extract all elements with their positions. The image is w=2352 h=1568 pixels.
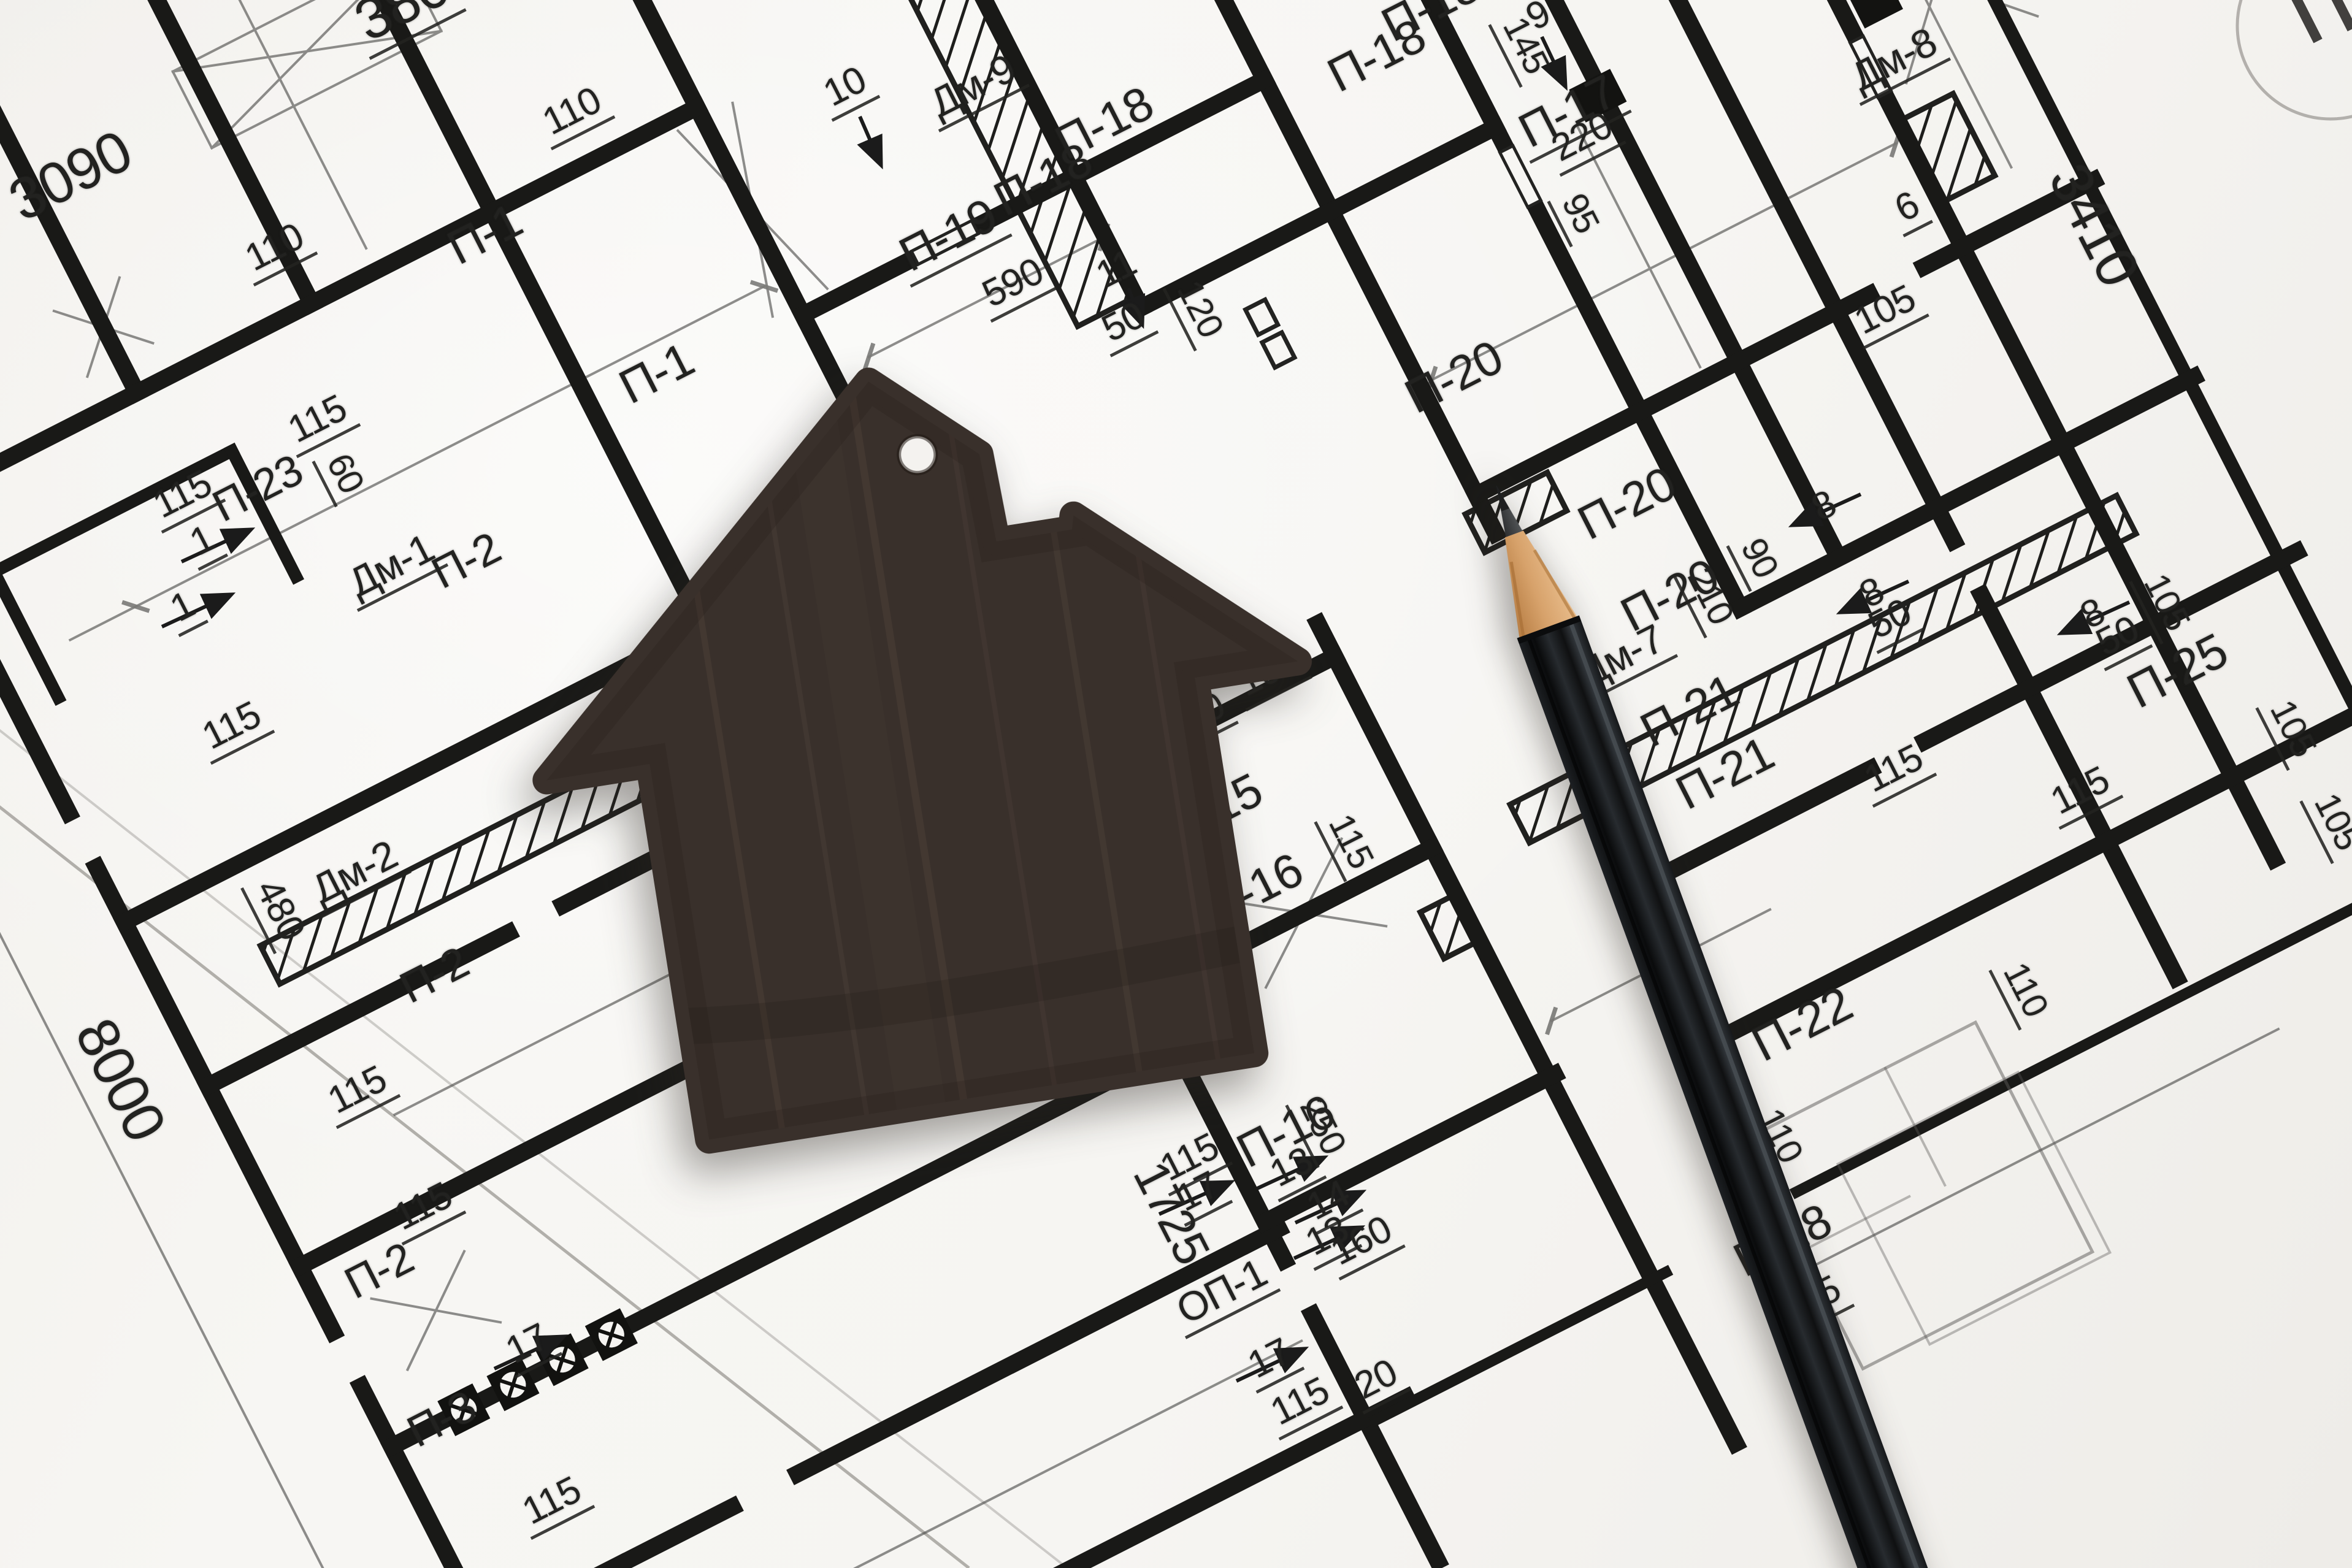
blueprint-photo: 3803090110110П-1П-1115П-23115601Дм-1П-21… [0,0,2352,1568]
photo-objects [0,0,2352,1568]
house-tag [489,298,1363,1192]
pencil [1465,474,2012,1568]
pencil-body [1518,618,2012,1568]
